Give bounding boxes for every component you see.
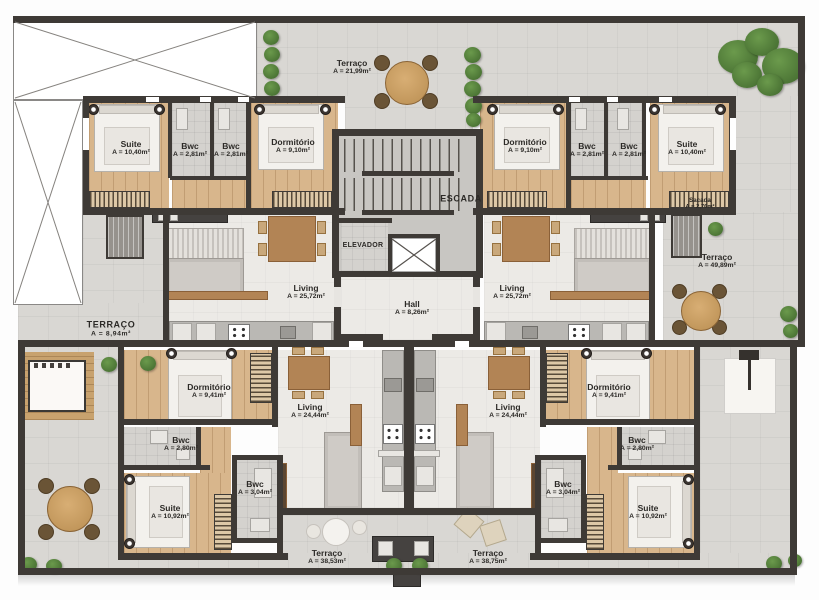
- window: [659, 97, 672, 102]
- tree: [757, 74, 783, 96]
- label-living-tl: LivingA = 25,72m²: [287, 283, 325, 301]
- kitchen-sink: [384, 378, 402, 392]
- wardrobe: [487, 191, 547, 208]
- bathroom-fixture: [617, 108, 629, 130]
- dining-table-tl: [268, 216, 316, 262]
- wall: [540, 419, 700, 425]
- terrace-table-top: [385, 61, 429, 105]
- label-elevador: ELEVADOR: [343, 242, 384, 250]
- sideboard: [166, 291, 268, 300]
- void-area-left: [13, 100, 83, 305]
- wall-shaft: [436, 234, 440, 276]
- label-suite-tl: SuiteA = 10,40m²: [112, 139, 150, 157]
- label-bwc1-tr: BwcA = 2,81m²: [570, 141, 604, 159]
- lamp: [581, 348, 592, 359]
- wall-shaft: [388, 272, 440, 276]
- fridge: [486, 322, 506, 341]
- wall-perimeter-right-lower: [790, 341, 797, 575]
- lamp: [715, 104, 726, 115]
- wall-elevator-room: [332, 218, 392, 223]
- wall: [408, 508, 541, 515]
- label-escada: ESCADA: [440, 194, 482, 205]
- chair: [551, 221, 560, 234]
- lamp: [683, 474, 694, 485]
- window: [200, 97, 211, 102]
- wardrobe: [250, 353, 272, 403]
- terrace-table-right: [681, 291, 721, 331]
- wood-panel: [350, 404, 362, 446]
- plant: [264, 47, 280, 62]
- stair-landing-bar: [362, 171, 454, 176]
- bbq-sink: [378, 541, 393, 556]
- wall: [570, 176, 648, 180]
- plant: [263, 64, 279, 79]
- wall-hall-bottom: [432, 334, 480, 340]
- label-terrace-top: TerraçoA = 21,99m²: [333, 58, 371, 76]
- wall: [540, 347, 546, 427]
- chair: [292, 391, 305, 399]
- chair: [258, 221, 267, 234]
- elevator-shaft: [392, 238, 436, 272]
- chair: [317, 221, 326, 234]
- kitchen-cabinet: [196, 323, 216, 341]
- floor-plan: TerraçoA = 21,99m² TerraçoA = 49,89m² TE…: [0, 0, 819, 600]
- bathroom-fixture: [548, 518, 568, 532]
- label-dorm-br: DormitórioA = 9,41m²: [587, 382, 630, 400]
- plant: [140, 356, 156, 371]
- label-suite-tr: SuiteA = 10,40m²: [668, 139, 706, 157]
- label-bwc-bottom-bl: BwcA = 3,04m²: [238, 479, 272, 497]
- door-opening: [473, 287, 480, 307]
- bbq-sink: [414, 541, 429, 556]
- wall: [729, 96, 736, 215]
- spa-controls: [34, 363, 74, 368]
- wall: [118, 343, 124, 560]
- window: [607, 97, 618, 102]
- door-opening: [349, 341, 363, 347]
- wall: [277, 508, 410, 515]
- chair: [492, 221, 501, 234]
- terrace-right-col: [730, 96, 805, 216]
- wood-panel: [456, 404, 468, 446]
- wall: [541, 455, 586, 460]
- wall: [232, 455, 277, 460]
- label-dorm-tr: DormitórioA = 9,10m²: [503, 137, 546, 155]
- plant: [464, 47, 481, 63]
- plant: [780, 306, 797, 322]
- label-bwc2-tl: BwcA = 2,81m²: [214, 141, 248, 159]
- wall: [163, 208, 345, 215]
- wall: [83, 208, 170, 215]
- label-terrace-right: TerraçoA = 49,89m²: [698, 252, 736, 270]
- wall: [277, 455, 283, 555]
- label-terrace-left: TERRAÇOA = 8,94m²: [87, 320, 136, 339]
- lamp: [641, 348, 652, 359]
- stove-icon: [568, 324, 590, 341]
- dining-table-bl: [288, 356, 330, 390]
- window: [238, 97, 249, 102]
- chair: [258, 243, 267, 256]
- wardrobe: [272, 191, 332, 208]
- window: [569, 97, 580, 102]
- stair-landing-bar: [362, 210, 454, 215]
- kitchen-sink: [522, 326, 538, 339]
- terrace-chair: [38, 478, 54, 494]
- wall: [581, 455, 586, 543]
- wall-perimeter-left-lower: [18, 340, 25, 575]
- sideboard: [550, 291, 652, 300]
- terrace-chair: [38, 524, 54, 540]
- wall: [118, 465, 210, 470]
- door-opening: [334, 287, 341, 307]
- void-area-top: [13, 20, 257, 100]
- chair: [512, 347, 525, 355]
- wall: [694, 343, 700, 560]
- wall-stair-top: [336, 129, 483, 136]
- label-suite-br: SuiteA = 10,92m²: [629, 503, 667, 521]
- wall-center-double: [404, 343, 414, 513]
- window: [83, 118, 89, 150]
- bathroom-fixture: [176, 108, 188, 130]
- label-dorm-tl: DormitórioA = 9,10m²: [271, 137, 314, 155]
- label-suite-bl: SuiteA = 10,92m²: [151, 503, 189, 521]
- kitchen-sink: [416, 378, 434, 392]
- lamp: [124, 538, 135, 549]
- lamp: [124, 474, 135, 485]
- wall: [642, 98, 646, 178]
- stove-icon: [415, 424, 435, 444]
- label-bwc-top-br: BwcA = 2,80m²: [620, 435, 654, 453]
- bathroom-fixture: [218, 108, 230, 130]
- wall: [118, 553, 288, 560]
- door-opening: [455, 341, 469, 347]
- plant: [466, 113, 481, 127]
- chair: [493, 391, 506, 399]
- counter-sink: [640, 214, 648, 221]
- wall: [210, 98, 214, 178]
- lamp: [88, 104, 99, 115]
- terrace-chair: [374, 55, 390, 71]
- label-bwc-top-bl: BwcA = 2,80m²: [164, 435, 198, 453]
- wall: [272, 347, 278, 427]
- chair: [311, 391, 324, 399]
- sacada-balcony-left: [106, 215, 144, 259]
- wall: [168, 98, 172, 178]
- stair-steps-upper: [344, 139, 460, 172]
- label-dorm-bl: DormitórioA = 9,41m²: [187, 382, 230, 400]
- chair: [492, 243, 501, 256]
- wall: [530, 553, 700, 560]
- wall: [649, 215, 655, 347]
- chair: [551, 243, 560, 256]
- label-terrace-bottom-left: TerraçoA = 38,53m²: [308, 548, 346, 566]
- wall: [118, 419, 278, 425]
- plant: [264, 81, 280, 96]
- label-living-tr: LivingA = 25,72m²: [493, 283, 531, 301]
- wall: [232, 538, 277, 543]
- wall-hall-bottom: [341, 334, 383, 340]
- chair: [512, 391, 525, 399]
- dining-table-br: [488, 356, 530, 390]
- umbrella-base: [739, 350, 759, 360]
- counter-sink: [170, 214, 178, 221]
- terrace-chair: [374, 93, 390, 109]
- label-bwc1-tl: BwcA = 2,81m²: [173, 141, 207, 159]
- lamp: [683, 538, 694, 549]
- label-bwc2-tr: BwcA = 2,81m²: [612, 141, 646, 159]
- label-terrace-bottom-right: TerraçoA = 38,75m²: [469, 548, 507, 566]
- label-hall: HallA = 8,26m²: [395, 299, 429, 317]
- fridge: [416, 466, 434, 486]
- lamp: [553, 104, 564, 115]
- wall: [541, 538, 586, 543]
- wall: [473, 208, 655, 215]
- kitchen-cabinet: [602, 323, 622, 341]
- wardrobe: [586, 494, 604, 550]
- stove-icon: [228, 324, 250, 341]
- chair: [317, 243, 326, 256]
- chair: [292, 347, 305, 355]
- wardrobe: [214, 494, 232, 550]
- curtain: [574, 228, 652, 262]
- plant: [101, 357, 117, 372]
- stove-icon: [383, 424, 403, 444]
- lamp: [254, 104, 265, 115]
- chair: [493, 347, 506, 355]
- lounge-table: [322, 518, 350, 546]
- label-living-bl: LivingA = 24,44m²: [291, 402, 329, 420]
- kitchen-cabinet: [626, 323, 646, 341]
- wall: [232, 455, 237, 543]
- wall-stair-left: [332, 129, 339, 278]
- terrace-chair: [672, 284, 687, 299]
- label-living-br: LivingA = 24,44m²: [489, 402, 527, 420]
- chair: [311, 347, 324, 355]
- wall: [604, 98, 608, 178]
- wall-perimeter-top: [13, 16, 805, 23]
- fridge: [312, 322, 332, 341]
- wall: [608, 465, 700, 470]
- wall-perimeter-bottom: [18, 568, 795, 575]
- plant: [465, 64, 482, 80]
- bathroom-fixture: [250, 518, 270, 532]
- lamp: [649, 104, 660, 115]
- window: [730, 118, 736, 150]
- terrace-chair: [84, 478, 100, 494]
- plant: [783, 324, 798, 338]
- lounge-chair: [352, 520, 367, 535]
- umbrella-pole: [748, 358, 751, 390]
- wall: [163, 215, 169, 347]
- plant: [263, 30, 279, 45]
- label-bwc-bottom-br: BwcA = 3,04m²: [546, 479, 580, 497]
- lamp: [166, 348, 177, 359]
- lounge-chair: [306, 524, 321, 539]
- lamp: [154, 104, 165, 115]
- wardrobe: [89, 191, 150, 208]
- wall: [170, 176, 248, 180]
- label-sacada-tr: SacadaA = 2,76m²: [686, 197, 715, 211]
- floor-corridor-tl: [172, 177, 247, 208]
- lamp: [487, 104, 498, 115]
- plant: [708, 222, 723, 236]
- terrace-chair: [84, 524, 100, 540]
- terrace-table-bottom-left: [47, 486, 93, 532]
- kitchen-cabinet: [172, 323, 192, 341]
- bathroom-fixture: [575, 108, 587, 130]
- curtain: [166, 228, 244, 262]
- kitchen-sink: [280, 326, 296, 339]
- lamp: [320, 104, 331, 115]
- wardrobe: [546, 353, 568, 403]
- dining-table-tr: [502, 216, 550, 262]
- fridge: [384, 466, 402, 486]
- window: [146, 97, 159, 102]
- wall-perimeter-right: [798, 16, 805, 346]
- lamp: [226, 348, 237, 359]
- wall: [83, 96, 89, 215]
- wall: [83, 96, 345, 103]
- plant: [464, 81, 481, 97]
- floor-corridor-tr: [571, 177, 646, 208]
